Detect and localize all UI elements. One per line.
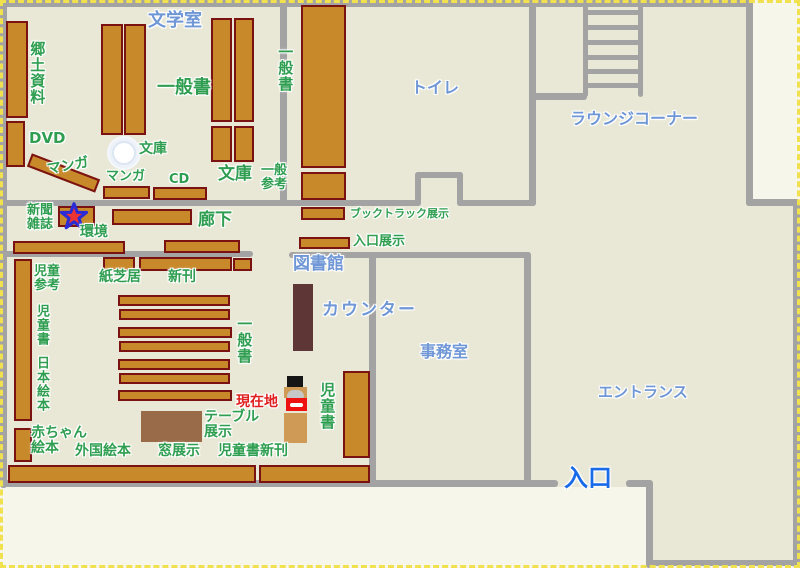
wall-right-upper — [746, 0, 753, 206]
entrance-hall-floor-bottom — [648, 485, 800, 566]
marker-red-box — [286, 398, 307, 411]
room-label-lounge: ラウンジコーナー — [570, 110, 698, 127]
bookshelf-entrance-display — [299, 237, 350, 249]
marker-white-bar — [290, 403, 303, 407]
area-label-children-new-books: 児童書新刊 — [218, 444, 288, 459]
area-label-dvd: DVD — [29, 130, 66, 146]
bookshelf-bottom-b — [259, 465, 370, 483]
bookshelf-row-7 — [118, 390, 232, 401]
area-label-newspaper-magazines: 新聞 雑誌 — [27, 204, 53, 232]
area-label-new-books: 新刊 — [168, 270, 196, 285]
marker-black-cap — [287, 376, 303, 387]
marker-pillar — [284, 413, 307, 443]
area-label-general-center: 一般書 — [236, 316, 252, 364]
round-table-icon — [112, 141, 136, 165]
stairs-step — [583, 10, 643, 15]
area-label-window-display: 窓展示 — [158, 444, 200, 459]
bookshelf-bunko-b — [234, 126, 254, 162]
area-label-kamishibai: 紙芝居 — [99, 270, 141, 285]
room-label-entrance: 入口 — [564, 466, 612, 492]
bookshelf-dvd — [6, 121, 25, 167]
bookshelf-general-reference — [301, 172, 346, 200]
bookshelf-row-3 — [118, 327, 232, 338]
wall-bottom-right — [646, 560, 800, 566]
bookshelf-children-tall — [343, 371, 370, 458]
room-label-counter: カウンター — [322, 301, 417, 319]
wall-step-right — [746, 199, 800, 206]
dome-shape — [287, 390, 304, 398]
stairs-step — [583, 40, 643, 45]
marker-dome — [284, 387, 307, 398]
wall-toilet-notch-top — [415, 172, 463, 178]
bookshelf-corridor-long-left — [13, 241, 125, 254]
bookshelf-small-right — [233, 258, 252, 271]
wall-office-right — [524, 252, 531, 484]
area-label-children-books-left: 児童書 — [34, 304, 48, 346]
bookshelf-row-4 — [119, 341, 230, 352]
room-label-literature: 文学室 — [148, 11, 202, 30]
area-label-entrance-display: 入口展示 — [353, 235, 405, 249]
room-label-library: 図書館 — [293, 255, 344, 273]
current-location-label: 現在地 — [236, 395, 278, 410]
stairs-step — [583, 25, 643, 30]
bookshelf-general-d — [234, 18, 254, 122]
area-label-foreign-picture-books: 外国絵本 — [75, 444, 131, 459]
bookshelf-booktruck-display — [301, 207, 345, 220]
bookshelf-children-column-a — [14, 259, 32, 421]
bookshelf-general-b — [124, 24, 146, 135]
stairs-step — [583, 55, 643, 60]
bookshelf-children-column-b — [14, 428, 32, 462]
bookshelf-general-c — [211, 18, 232, 122]
bookshelf-row-2 — [119, 309, 230, 320]
area-label-local-materials: 郷土資料 — [29, 41, 45, 105]
room-label-toilet: トイレ — [411, 79, 459, 96]
wall-right-lower — [793, 199, 800, 568]
area-label-bunko-round: 文庫 — [139, 142, 167, 157]
area-label-bunko-right: 文庫 — [218, 165, 252, 183]
bookshelf-bottom-a — [8, 465, 256, 483]
stairs-step — [583, 69, 643, 74]
library-floor-map: 文学室 トイレ ラウンジコーナー 図書館 カウンター 事務室 エントランス 入口… — [0, 0, 800, 568]
room-label-office: 事務室 — [420, 343, 468, 360]
area-label-environment: 環境 — [80, 225, 108, 240]
bookshelf-row-6 — [119, 373, 230, 384]
bookshelf-manga — [103, 186, 150, 199]
area-label-table-display: テーブル 展示 — [204, 410, 259, 440]
bookshelf-environment — [112, 209, 192, 225]
area-label-children-books-right: 児童書 — [319, 382, 335, 430]
bookshelf-row-5 — [118, 359, 230, 370]
area-label-manga-mid: マンガ — [106, 170, 145, 184]
bookshelf-bunko-a — [211, 126, 232, 162]
bookshelf-tall-right — [301, 5, 346, 168]
bookshelf-row-1 — [118, 295, 230, 306]
display-table — [141, 411, 202, 442]
wall-toilet-bottom — [457, 200, 536, 206]
area-label-children-reference: 児童 参考 — [34, 265, 60, 293]
wall-stairs-connector — [532, 93, 587, 100]
area-label-general-top: 一般書 — [157, 78, 211, 97]
counter-desk — [293, 284, 313, 351]
wall-office-left — [369, 252, 376, 484]
bookshelf-general-a — [101, 24, 123, 135]
bookshelf-cd — [153, 187, 207, 200]
wall-toilet-lounge-divider — [529, 0, 536, 206]
area-label-corridor: 廊下 — [198, 211, 232, 229]
area-label-cd: CD — [169, 173, 189, 187]
wall-entrance-vertical — [646, 480, 653, 568]
room-label-entrance-hall: エントランス — [598, 384, 688, 400]
area-label-general-reference: 一般 参考 — [261, 164, 287, 192]
area-label-general-right: 一般書 — [277, 44, 293, 92]
area-label-booktruck-display: ブックトラック展示 — [350, 208, 449, 220]
bookshelf-local-materials — [6, 21, 28, 118]
area-label-japanese-picture-books: 日本絵本 — [34, 356, 48, 412]
stairs-step — [583, 83, 643, 88]
bookshelf-corridor-long-right — [164, 240, 240, 253]
